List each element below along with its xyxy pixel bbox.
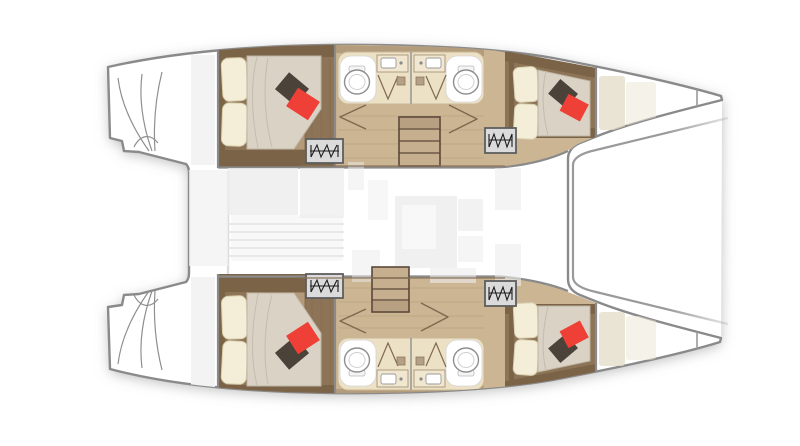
- companionway-hatch: [306, 139, 343, 163]
- cockpit-furniture: [122, 170, 228, 268]
- starboard-hull-bathrooms: [338, 338, 484, 390]
- starboard-hull-staircase: [372, 267, 409, 312]
- port-hull-bathrooms: [338, 52, 484, 104]
- port-hull-staircase: [399, 117, 440, 166]
- companionway-hatch: [485, 128, 516, 153]
- floor-plan-svg: [0, 0, 800, 446]
- catamaran-floor-plan: [0, 0, 800, 446]
- companionway-hatch: [485, 281, 516, 306]
